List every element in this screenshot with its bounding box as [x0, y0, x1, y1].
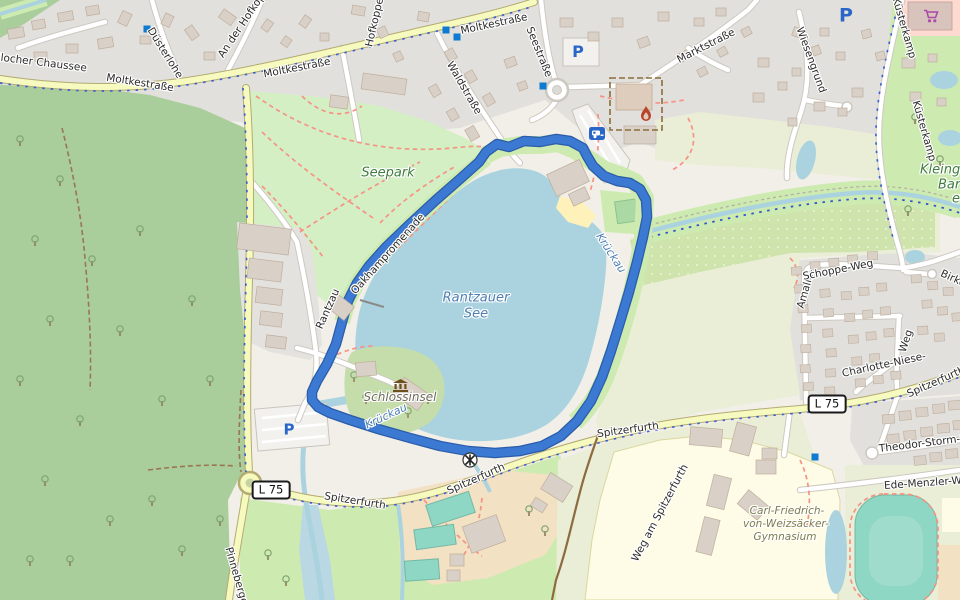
bus-stop-marker [443, 27, 450, 34]
road-ref-badge: L 75 [252, 481, 291, 500]
map-canvas[interactable]: P P P ßlocher Chaussee Moltkestraße Molt… [0, 0, 960, 600]
bus-stop-marker [454, 34, 461, 41]
bus-stop-marker [812, 454, 819, 461]
road-ref-badge: L 75 [808, 395, 847, 414]
map-base-layer [0, 0, 960, 600]
bus-stop-marker [540, 83, 547, 90]
bus-stop-marker [144, 26, 151, 33]
